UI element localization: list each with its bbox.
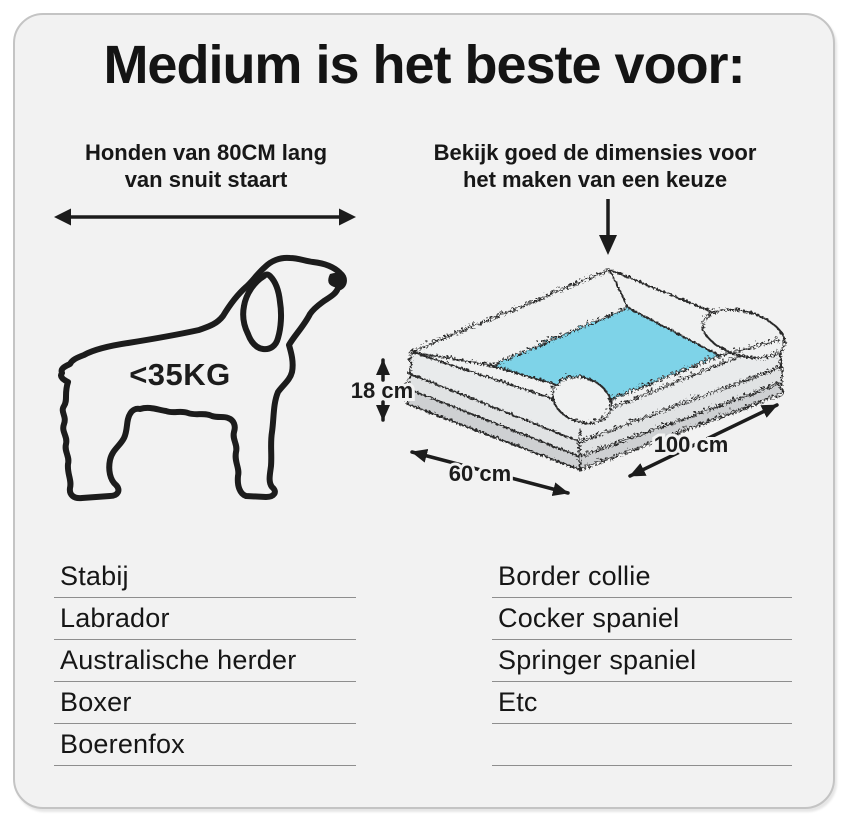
arrow-right-head [339,209,356,226]
length-double-arrow-icon [52,204,358,230]
breed-item: Cocker spaniel [492,598,792,640]
bed-height-label: 18 cm [351,378,413,403]
breed-item: Stabij [54,556,356,598]
breed-item: Border collie [492,556,792,598]
dog-nose [328,273,343,288]
bed-length-label: 100 cm [654,432,729,457]
breed-item: Etc [492,682,792,724]
breed-list-left: Stabij Labrador Australische herder Boxe… [54,556,356,766]
dog-size-subtitle: Honden van 80CM lang van snuit staart [40,139,372,193]
infographic: Medium is het beste voor: Honden van 80C… [0,0,848,822]
breed-list-right: Border collie Cocker spaniel Springer sp… [492,556,792,766]
breed-item-empty [492,724,792,766]
dog-bed-isometric-icon: 18 cm 60 cm 100 cm [350,250,810,510]
dimensions-subtitle-line2: het maken van een keuze [413,166,777,193]
breed-item: Boerenfox [54,724,356,766]
dog-outline-icon: <35KG [58,254,348,504]
dog-size-subtitle-line1: Honden van 80CM lang [40,139,372,166]
breed-item: Springer spaniel [492,640,792,682]
dimensions-subtitle-line1: Bekijk goed de dimensies voor [413,139,777,166]
dog-size-subtitle-line2: van snuit staart [40,166,372,193]
breed-item: Boxer [54,682,356,724]
dog-weight-label: <35KG [129,357,231,392]
breed-item: Labrador [54,598,356,640]
breed-item: Australische herder [54,640,356,682]
page-title: Medium is het beste voor: [0,34,848,96]
pointer-down-arrow-icon [594,196,622,258]
arrow-left-head [54,209,71,226]
dimensions-subtitle: Bekijk goed de dimensies voor het maken … [413,139,777,193]
bed-width-label: 60 cm [449,461,511,486]
